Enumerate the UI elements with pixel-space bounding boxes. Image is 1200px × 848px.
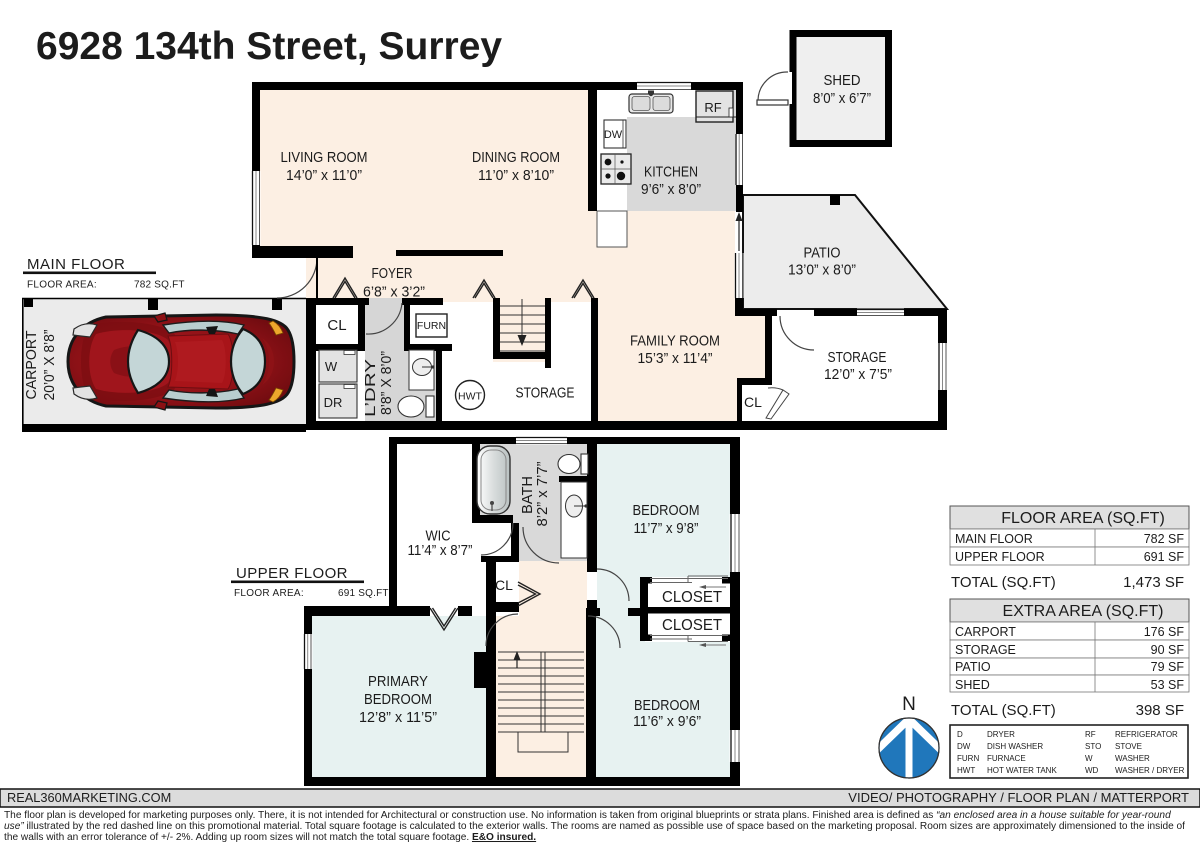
svg-text:90 SF: 90 SF bbox=[1151, 643, 1185, 657]
svg-text:CARPORT: CARPORT bbox=[955, 625, 1016, 639]
svg-text:VIDEO/ PHOTOGRAPHY / FLOOR PLA: VIDEO/ PHOTOGRAPHY / FLOOR PLAN / MATTER… bbox=[848, 790, 1189, 805]
svg-text:WD: WD bbox=[1085, 766, 1099, 775]
svg-text:176 SF: 176 SF bbox=[1144, 625, 1185, 639]
svg-text:BEDROOM: BEDROOM bbox=[364, 691, 432, 708]
svg-text:STOVE: STOVE bbox=[1115, 742, 1142, 751]
svg-text:RF: RF bbox=[1085, 730, 1096, 739]
svg-text:12’8” x 11’5”: 12’8” x 11’5” bbox=[359, 709, 437, 726]
svg-text:CLOSET: CLOSET bbox=[662, 617, 723, 634]
svg-text:HWT: HWT bbox=[458, 391, 482, 403]
svg-text:SHED: SHED bbox=[824, 72, 861, 89]
svg-text:DRYER: DRYER bbox=[987, 730, 1015, 739]
svg-text:W: W bbox=[1085, 754, 1093, 763]
svg-text:SHED: SHED bbox=[955, 678, 990, 692]
svg-text:RF: RF bbox=[704, 100, 721, 115]
svg-text:13’0” x 8’0”: 13’0” x 8’0” bbox=[788, 262, 856, 279]
svg-text:REAL360MARKETING.COM: REAL360MARKETING.COM bbox=[7, 790, 171, 805]
svg-text:LIVING ROOM: LIVING ROOM bbox=[281, 149, 368, 166]
svg-text:CL: CL bbox=[744, 394, 762, 410]
svg-text:11’0” x 8’10”: 11’0” x 8’10” bbox=[478, 167, 554, 184]
svg-text:UPPER FLOOR: UPPER FLOOR bbox=[236, 565, 348, 582]
svg-text:DR: DR bbox=[324, 395, 343, 410]
svg-text:11’6” x 9’6”: 11’6” x 9’6” bbox=[633, 713, 701, 730]
svg-text:1,473 SF: 1,473 SF bbox=[1123, 574, 1184, 591]
svg-text:FAMILY ROOM: FAMILY ROOM bbox=[630, 333, 720, 350]
svg-text:STORAGE: STORAGE bbox=[955, 643, 1016, 657]
svg-text:8’2” x 7’7”: 8’2” x 7’7” bbox=[534, 461, 551, 526]
svg-text:CLOSET: CLOSET bbox=[662, 589, 723, 606]
svg-text:L’DRY: L’DRY bbox=[362, 359, 379, 417]
svg-text:W: W bbox=[325, 359, 338, 374]
svg-text:11’4” x 8’7”: 11’4” x 8’7” bbox=[408, 542, 473, 559]
svg-text:53 SF: 53 SF bbox=[1151, 678, 1185, 692]
svg-text:12’0” x 7’5”: 12’0” x 7’5” bbox=[824, 366, 892, 383]
svg-text:D: D bbox=[957, 730, 963, 739]
svg-text:CL: CL bbox=[495, 577, 513, 593]
svg-text:WASHER: WASHER bbox=[1115, 754, 1150, 763]
svg-text:15’3” x 11’4”: 15’3” x 11’4” bbox=[638, 350, 713, 367]
svg-text:N: N bbox=[902, 694, 916, 715]
svg-text:8’8” X 8’0”: 8’8” X 8’0” bbox=[378, 351, 395, 415]
svg-text:CL: CL bbox=[327, 317, 346, 334]
svg-text:691 SQ.FT: 691 SQ.FT bbox=[338, 588, 389, 599]
svg-text:HWT: HWT bbox=[957, 766, 975, 775]
svg-text:6’8” x 3’2”: 6’8” x 3’2” bbox=[363, 284, 425, 301]
svg-text:STORAGE: STORAGE bbox=[828, 349, 887, 366]
svg-text:398 SF: 398 SF bbox=[1136, 702, 1184, 719]
svg-text:6928 134th Street, Surrey: 6928 134th Street, Surrey bbox=[36, 25, 502, 68]
svg-text:79 SF: 79 SF bbox=[1151, 660, 1185, 674]
svg-text:CARPORT: CARPORT bbox=[23, 331, 40, 400]
svg-text:DW: DW bbox=[604, 129, 623, 141]
svg-text:MAIN FLOOR: MAIN FLOOR bbox=[955, 532, 1033, 546]
svg-text:use” illustrated by the red da: use” illustrated by the red dashed line … bbox=[4, 821, 1185, 832]
svg-text:782 SF: 782 SF bbox=[1144, 532, 1185, 546]
svg-text:UPPER FLOOR: UPPER FLOOR bbox=[955, 550, 1045, 564]
svg-text:FOYER: FOYER bbox=[372, 265, 413, 282]
svg-text:PATIO: PATIO bbox=[804, 245, 841, 262]
svg-text:EXTRA AREA (SQ.FT): EXTRA AREA (SQ.FT) bbox=[1003, 603, 1164, 620]
svg-text:DINING ROOM: DINING ROOM bbox=[472, 149, 560, 166]
svg-text:REFRIGERATOR: REFRIGERATOR bbox=[1115, 730, 1178, 739]
svg-text:HOT WATER TANK: HOT WATER TANK bbox=[987, 766, 1057, 775]
svg-text:8’0” x 6’7”: 8’0” x 6’7” bbox=[813, 90, 871, 107]
svg-text:the walls with an error tolera: the walls with an error tolerance of +/-… bbox=[4, 832, 536, 843]
svg-text:PATIO: PATIO bbox=[955, 660, 991, 674]
svg-text:The floor plan is developed fo: The floor plan is developed for marketin… bbox=[4, 810, 1171, 821]
svg-text:WASHER / DRYER: WASHER / DRYER bbox=[1115, 766, 1185, 775]
svg-text:DISH WASHER: DISH WASHER bbox=[987, 742, 1043, 751]
svg-text:FLOOR AREA:: FLOOR AREA: bbox=[234, 588, 304, 599]
svg-text:FURNACE: FURNACE bbox=[987, 754, 1026, 763]
svg-text:FURN: FURN bbox=[417, 320, 446, 332]
svg-text:782 SQ.FT: 782 SQ.FT bbox=[134, 280, 185, 291]
svg-text:TOTAL (SQ.FT): TOTAL (SQ.FT) bbox=[951, 574, 1056, 591]
svg-text:BEDROOM: BEDROOM bbox=[633, 502, 700, 519]
svg-text:MAIN FLOOR: MAIN FLOOR bbox=[27, 256, 125, 273]
svg-text:FURN: FURN bbox=[957, 754, 979, 763]
svg-text:BEDROOM: BEDROOM bbox=[634, 697, 700, 714]
svg-text:FLOOR AREA (SQ.FT): FLOOR AREA (SQ.FT) bbox=[1001, 510, 1165, 527]
svg-text:STO: STO bbox=[1085, 742, 1101, 751]
svg-text:FLOOR AREA:: FLOOR AREA: bbox=[27, 280, 97, 291]
svg-text:11’7” x 9’8”: 11’7” x 9’8” bbox=[634, 520, 699, 537]
svg-text:STORAGE: STORAGE bbox=[516, 385, 575, 402]
svg-text:14’0” x 11’0”: 14’0” x 11’0” bbox=[286, 167, 362, 184]
svg-text:9’6” x 8’0”: 9’6” x 8’0” bbox=[641, 181, 701, 198]
svg-text:TOTAL (SQ.FT): TOTAL (SQ.FT) bbox=[951, 702, 1056, 719]
svg-text:PRIMARY: PRIMARY bbox=[368, 673, 428, 690]
svg-text:KITCHEN: KITCHEN bbox=[644, 164, 698, 181]
svg-text:691 SF: 691 SF bbox=[1144, 550, 1185, 564]
svg-text:20’0” X 8’8”: 20’0” X 8’8” bbox=[41, 330, 58, 401]
svg-text:DW: DW bbox=[957, 742, 971, 751]
